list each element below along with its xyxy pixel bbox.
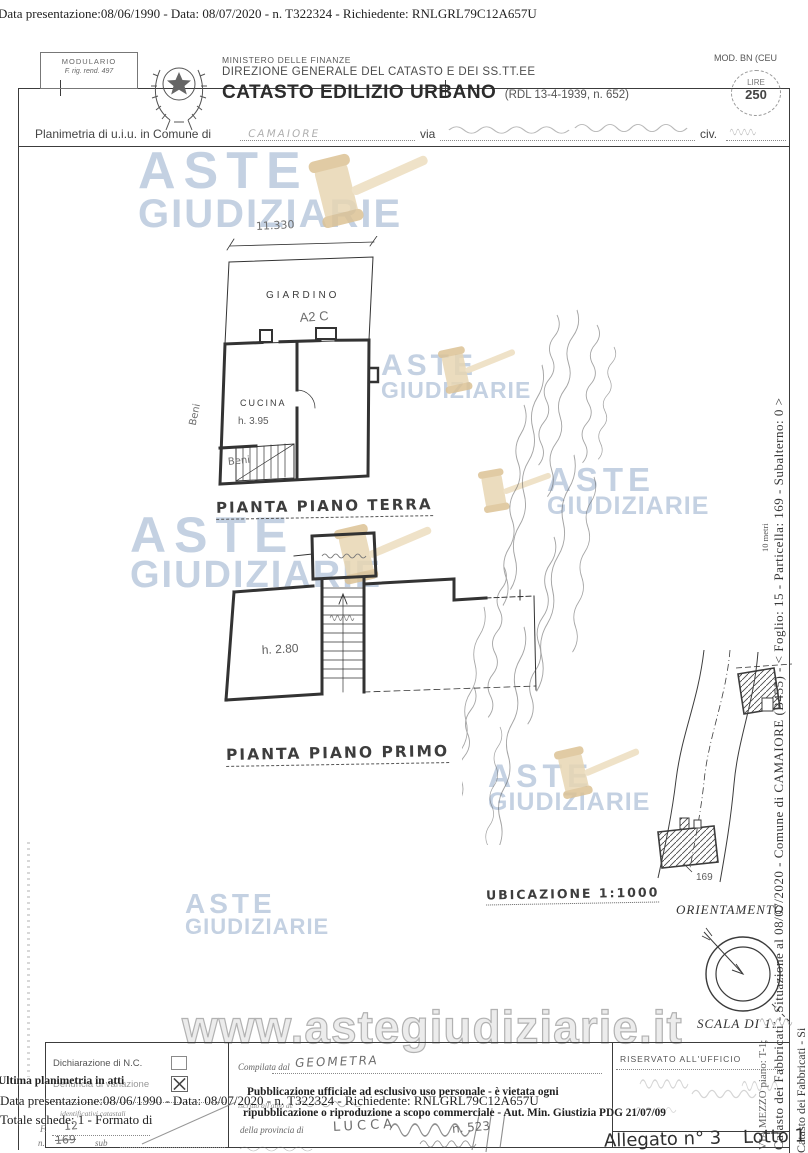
document-title-row: CATASTO EDILIZIO URBANO (RDL 13-4-1939, … [222,82,629,104]
provincia-label: della provincia di [240,1125,304,1135]
checkbox-checked-icon [172,1077,187,1091]
footer-box-top [45,1042,789,1043]
numero-label: n. [38,1138,45,1148]
kitchen-height-label: h. 3.95 [238,416,269,427]
watermark-aste: ASTE GIUDIZIARIE [185,891,329,937]
overlay-pubblicazione-line2: ripubblicazione o riproduzione a scopo c… [243,1107,666,1119]
allegato-number: Allegato n° 3 [604,1128,722,1152]
garden-handwritten-note: A2 C [299,308,329,325]
garden-label: GIARDINO [266,290,339,301]
civ-label: civ. [700,127,717,141]
riservato-label: RISERVATO ALL'UFFICIO [620,1054,741,1064]
directorate-label: DIREZIONE GENERALE DEL CATASTO E DEI SS.… [222,66,535,78]
via-handwritten-scribble [445,118,695,140]
numero-handwritten-value: 169 [55,1133,77,1147]
modulario-box: MODULARIO F. rig. rend. 497 [40,52,138,89]
first-floor-caption: PIANTA PIANO PRIMO [226,742,450,767]
dimension-note: 11.330 [256,218,295,233]
compilata-dotted-line [272,1072,602,1074]
right-margin-scale-note: 10 metri [760,500,770,552]
watermark-line1: ASTE [185,891,329,917]
italy-emblem-icon [148,52,210,132]
room-height-label: h. 2.80 [261,641,299,657]
ubicazione-caption: UBICAZIONE 1:1000 [486,884,660,905]
location-map-sketch: 169 [640,644,792,884]
ground-floor-caption: PIANTA PIANO TERRA [216,495,433,520]
kitchen-label: CUCINA [240,398,287,408]
parcel-number-label: 169 [696,872,713,883]
compilata-handwritten-value: GEOMETRA [294,1053,379,1070]
overlay-pubblicazione-line1: Pubblicazione ufficiale ad esclusivo uso… [247,1086,559,1098]
date-handwritten-scribble [238,1141,358,1153]
document-header-line: Data presentazione:08/06/1990 - Data: 08… [0,6,537,22]
comune-handwritten-value: CAMAIORE [247,128,321,140]
overlay-ultima-planimetria: Ultima planimetria in atti [0,1075,124,1087]
dichiarazione-label: Dichiarazione di N.C. [53,1058,142,1069]
civ-handwritten-scribble [728,122,758,140]
bath-handwritten-scribble [322,554,366,558]
sub-label: sub [95,1138,108,1148]
stamp-currency: LIRE [732,78,780,87]
stamp-value: 250 [732,87,780,102]
orientation-label: ORIENTAMENTO [676,902,784,918]
mod-code-label: MOD. BN (CEU [714,53,777,63]
modulario-sub: F. rig. rend. 497 [41,68,137,75]
sheet-border-left [18,88,19,1150]
dichiarazione-checkbox [171,1056,187,1070]
right-margin-main-text: Catasto dei Fabbricati - Situazione al 0… [771,348,787,1150]
scanned-cadastral-document: Data presentazione:08/06/1990 - Data: 08… [0,0,808,1153]
watermark-line2: GIUDIZIARIE [185,917,329,937]
overlay-totale-line: Totale schede: 1 - Formato di [0,1112,153,1128]
ground-floor-plan: GIARDINO A2 C CUCINA h. 3.95 [196,236,398,520]
document-title-ref: (RDL 13-4-1939, n. 652) [505,89,629,101]
stair-handwritten-scribble [330,616,354,621]
modulario-title: MODULARIO [41,57,137,66]
planimetria-prefix: Planimetria di u.i.u. in Comune di [35,127,211,141]
variazione-checkbox [171,1076,188,1092]
lotto-number: Lotto 1 [743,1125,807,1148]
ministry-label: MINISTERO DELLE FINANZE [222,55,351,65]
rotated-handwriting-sketch [462,305,662,845]
compilata-label: Compilata dal [238,1062,290,1072]
document-title: CATASTO EDILIZIO URBANO [222,82,496,103]
watermark-url: www.astegiudiziarie.it [182,1000,683,1054]
beni-bottom-note: Beni [227,455,250,468]
left-margin-print [27,842,30,1077]
lire-stamp: LIRE 250 [731,70,781,116]
